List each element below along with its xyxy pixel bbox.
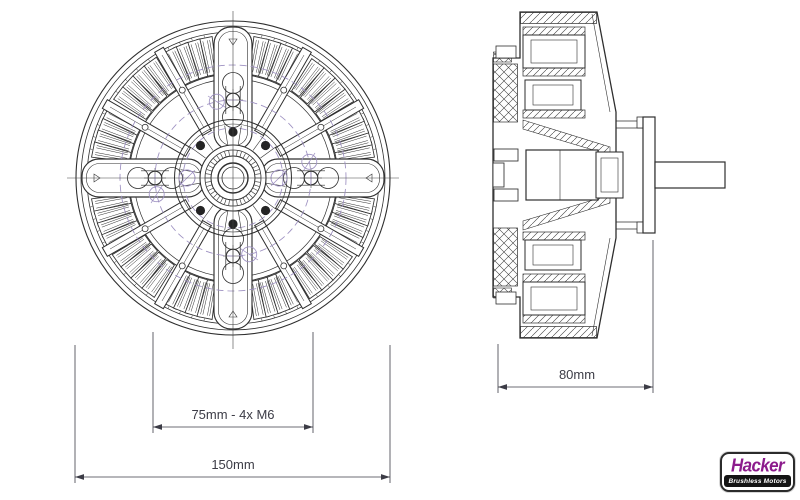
logo-brand-text: Hacker — [731, 456, 784, 474]
motor-technical-drawing: 75mm - 4x M6 150mm 80mm — [0, 0, 800, 500]
technical-drawing-page: 75mm - 4x M6 150mm 80mm Hacker Brushless… — [0, 0, 800, 500]
side-view-cross-section — [493, 12, 725, 338]
dimension-label-bolt-circle: 75mm - 4x M6 — [191, 407, 274, 422]
dimension-label-overall-length: 80mm — [559, 367, 595, 382]
logo-tagline-text: Brushless Motors — [728, 478, 786, 485]
dimension-label-outer-diameter: 150mm — [211, 457, 254, 472]
logo-tagline-bar: Brushless Motors — [724, 475, 790, 487]
front-view — [67, 11, 399, 349]
hacker-logo: Hacker Brushless Motors — [720, 452, 795, 492]
